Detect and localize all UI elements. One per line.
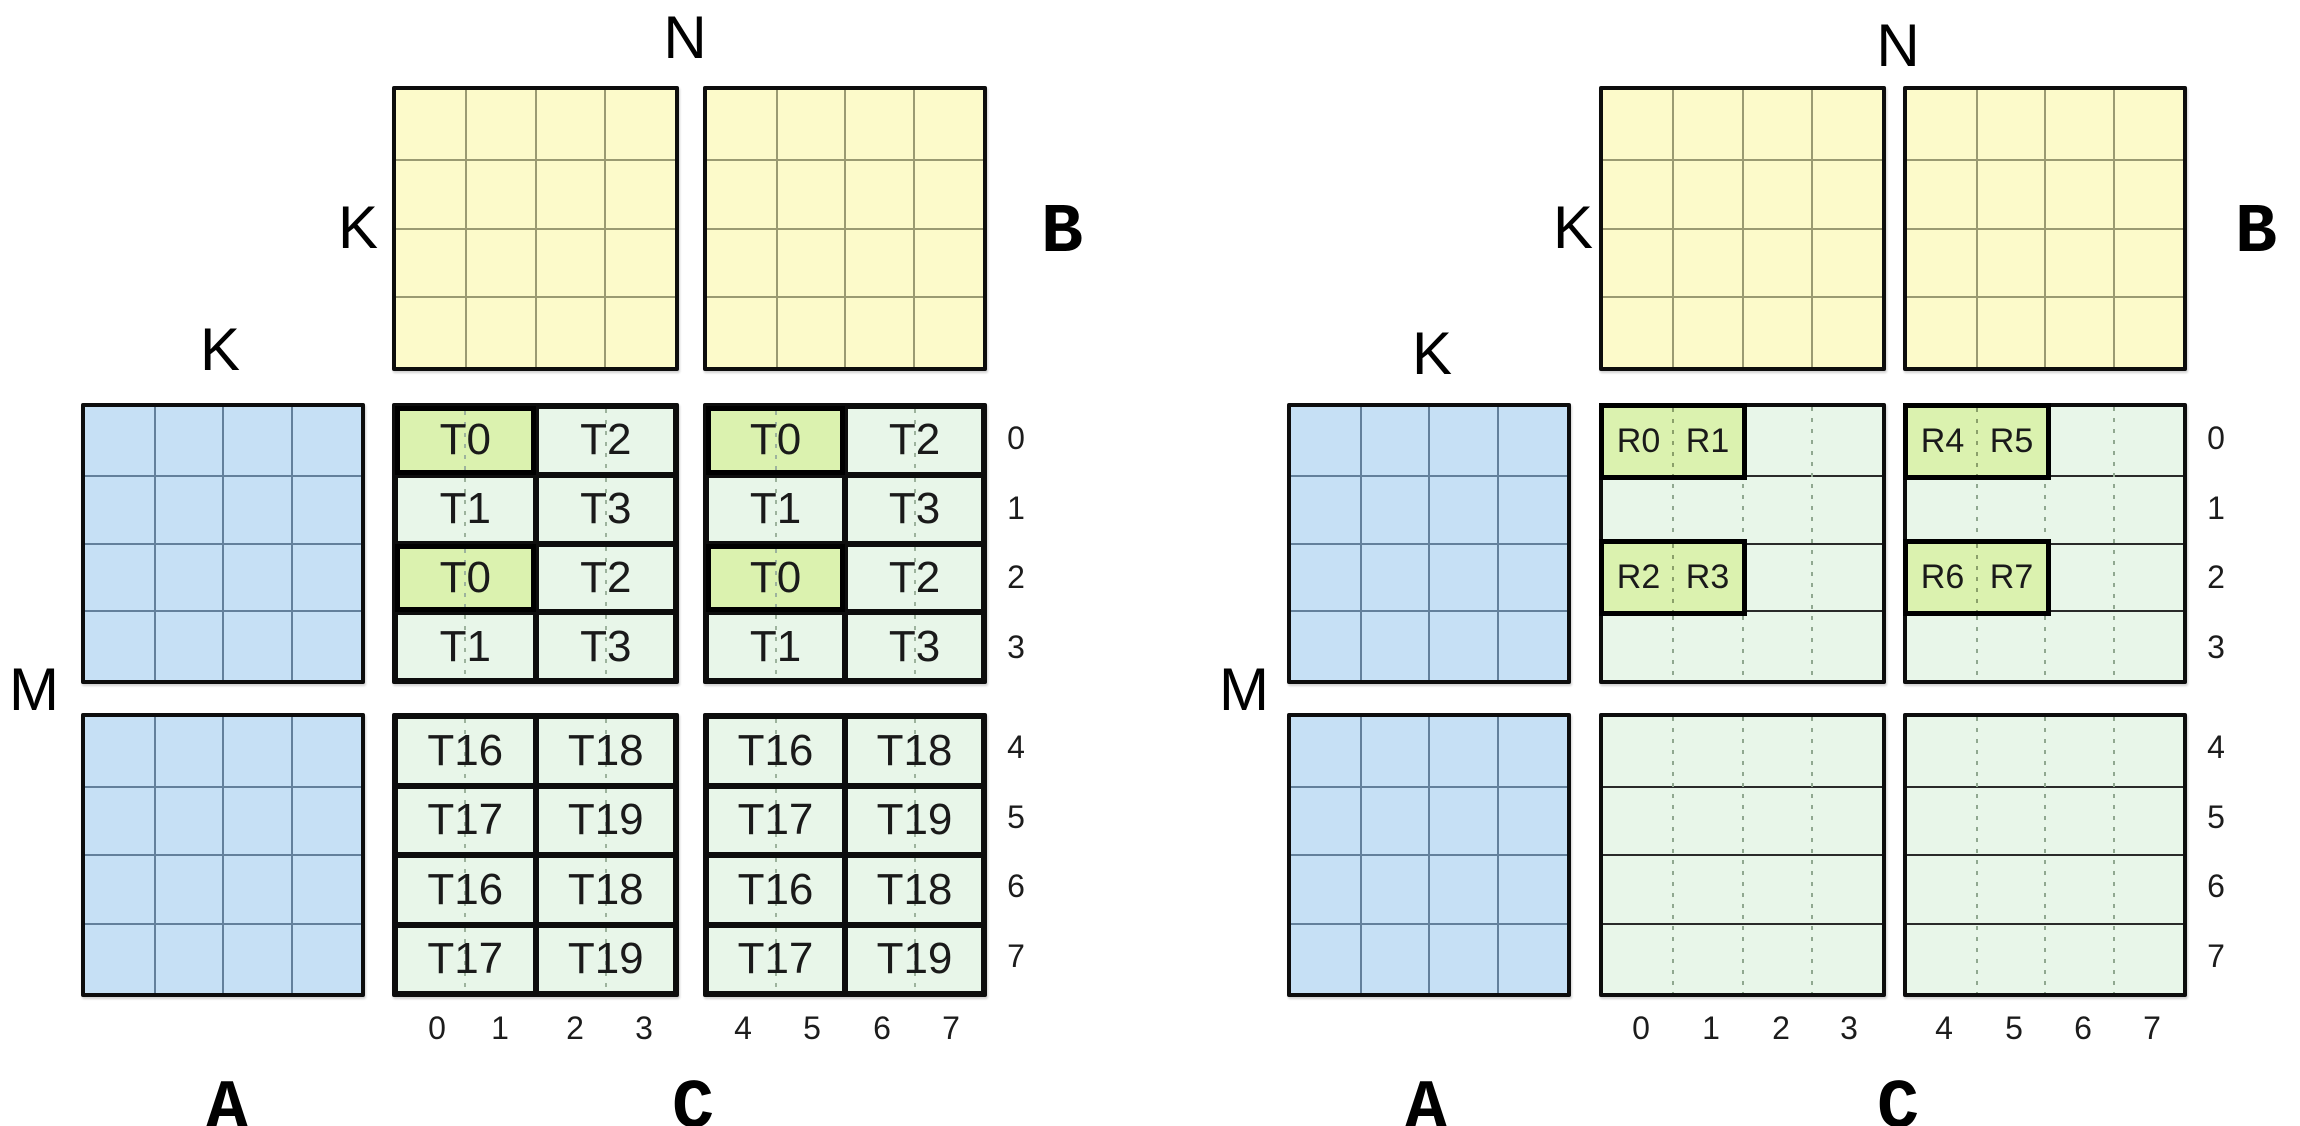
- col-index: 7: [933, 1008, 969, 1048]
- register-label: R5: [1977, 422, 2046, 461]
- c-tile-cell: T16: [706, 716, 845, 786]
- n-axis-label: N: [649, 6, 721, 70]
- matrix-a-label: A: [1376, 1074, 1476, 1126]
- matrix-c-label: C: [643, 1074, 743, 1126]
- register-box: R4 R5: [1903, 403, 2051, 480]
- m-axis-label: M: [6, 658, 62, 722]
- row-index: 1: [2198, 488, 2234, 528]
- row-index: 3: [998, 627, 1034, 667]
- c-tile-cell: T19: [845, 786, 984, 856]
- register-label: R2: [1604, 558, 1673, 597]
- col-index: 1: [1693, 1008, 1729, 1048]
- m-axis-label: M: [1216, 658, 1272, 722]
- c-tile-cell: T3: [845, 612, 984, 681]
- c-tile-cell: T16: [395, 855, 536, 925]
- c-block-rows4-7-cols0-3: T16 T18 T17 T19 T16 T18 T17 T19: [392, 713, 679, 997]
- matrix-a-block-2: [1287, 713, 1571, 997]
- c-block-rows0-3-cols4-7: R4 R5 R6 R7: [1903, 403, 2187, 684]
- register-label: R1: [1673, 422, 1742, 461]
- k-axis-label-above-a: K: [1396, 322, 1468, 386]
- col-index: 3: [1831, 1008, 1867, 1048]
- c-tile-cell: T1: [395, 475, 536, 544]
- col-index: 6: [864, 1008, 900, 1048]
- register-label: R7: [1977, 558, 2046, 597]
- col-index: 4: [725, 1008, 761, 1048]
- col-index: 3: [626, 1008, 662, 1048]
- register-label: R3: [1673, 558, 1742, 597]
- register-box: R6 R7: [1903, 539, 2051, 616]
- col-index: 0: [419, 1008, 455, 1048]
- c-tile-cell: T17: [706, 786, 845, 856]
- c-block-rows4-7-cols4-7: T16 T18 T17 T19 T16 T18 T17 T19: [703, 713, 987, 997]
- matrix-a-block-2: [81, 713, 365, 997]
- c-block-rows4-7-cols4-7: [1903, 713, 2187, 997]
- row-index: 7: [998, 936, 1034, 976]
- c-tile-cell: T18: [536, 855, 677, 925]
- c-tile-cell: T3: [845, 475, 984, 544]
- c-tile-cell: T17: [395, 786, 536, 856]
- c-tile-cell: T17: [706, 925, 845, 995]
- c-tile-cell: T3: [536, 612, 677, 681]
- c-tile-cell: T19: [536, 925, 677, 995]
- register-label: R0: [1604, 422, 1673, 461]
- row-index: 5: [2198, 797, 2234, 837]
- c-block-rows4-7-cols0-3: [1599, 713, 1886, 997]
- c-tile-cell: T0: [395, 406, 536, 475]
- c-tile-cell: T3: [536, 475, 677, 544]
- row-index: 4: [2198, 727, 2234, 767]
- matrix-a-block-1: [81, 403, 365, 684]
- col-index: 1: [482, 1008, 518, 1048]
- matrix-b-block-1: [392, 86, 679, 371]
- col-index: 5: [1996, 1008, 2032, 1048]
- c-tile-cell: T1: [395, 612, 536, 681]
- row-index: 2: [998, 557, 1034, 597]
- row-index: 3: [2198, 627, 2234, 667]
- matrix-a-label: A: [177, 1074, 277, 1126]
- col-index: 6: [2065, 1008, 2101, 1048]
- row-index: 6: [2198, 866, 2234, 906]
- c-block-rows0-3-cols0-3: R0 R1 R2 R3: [1599, 403, 1886, 684]
- k-axis-label-beside-b: K: [322, 196, 394, 260]
- c-tile-cell: T1: [706, 475, 845, 544]
- n-axis-label: N: [1862, 14, 1934, 78]
- row-index: 4: [998, 727, 1034, 767]
- c-tile-cell: T0: [395, 544, 536, 613]
- matrix-a-block-1: [1287, 403, 1571, 684]
- c-tile-cell: T18: [845, 855, 984, 925]
- k-axis-label-above-a: K: [184, 318, 256, 382]
- c-tile-cell: T2: [536, 406, 677, 475]
- matrix-b-block-2: [703, 86, 987, 371]
- col-index: 0: [1623, 1008, 1659, 1048]
- register-label: R4: [1908, 422, 1977, 461]
- register-box: R0 R1: [1599, 403, 1747, 480]
- row-index: 6: [998, 866, 1034, 906]
- matrix-c-label: C: [1848, 1074, 1948, 1126]
- c-tile-cell: T2: [845, 544, 984, 613]
- row-index: 0: [998, 418, 1034, 458]
- matrix-b-label: B: [2214, 198, 2298, 270]
- row-index: 2: [2198, 557, 2234, 597]
- matrix-b-label: B: [1020, 198, 1104, 270]
- c-block-rows0-3-cols0-3: T0 T2 T1 T3 T0 T2 T1 T3: [392, 403, 679, 684]
- c-tile-cell: T16: [706, 855, 845, 925]
- c-tile-cell: T1: [706, 612, 845, 681]
- col-index: 2: [1763, 1008, 1799, 1048]
- register-label: R6: [1908, 558, 1977, 597]
- c-tile-cell: T2: [845, 406, 984, 475]
- c-tile-cell: T2: [536, 544, 677, 613]
- col-index: 5: [794, 1008, 830, 1048]
- matrix-b-block-2: [1903, 86, 2187, 371]
- row-index: 0: [2198, 418, 2234, 458]
- row-index: 1: [998, 488, 1034, 528]
- col-index: 7: [2134, 1008, 2170, 1048]
- matrix-b-block-1: [1599, 86, 1886, 371]
- c-tile-cell: T18: [536, 716, 677, 786]
- c-tile-cell: T0: [706, 544, 845, 613]
- col-index: 4: [1926, 1008, 1962, 1048]
- c-tile-cell: T17: [395, 925, 536, 995]
- c-tile-cell: T19: [536, 786, 677, 856]
- row-index: 7: [2198, 936, 2234, 976]
- c-block-rows0-3-cols4-7: T0 T2 T1 T3 T0 T2 T1 T3: [703, 403, 987, 684]
- register-box: R2 R3: [1599, 539, 1747, 616]
- c-tile-cell: T16: [395, 716, 536, 786]
- gemm-tiling-figure: N K B K M A C T0 T2 T1 T3 T0 T2 T1 T3 T0…: [0, 0, 2300, 1126]
- c-tile-cell: T0: [706, 406, 845, 475]
- row-index: 5: [998, 797, 1034, 837]
- col-index: 2: [557, 1008, 593, 1048]
- c-tile-cell: T19: [845, 925, 984, 995]
- c-tile-cell: T18: [845, 716, 984, 786]
